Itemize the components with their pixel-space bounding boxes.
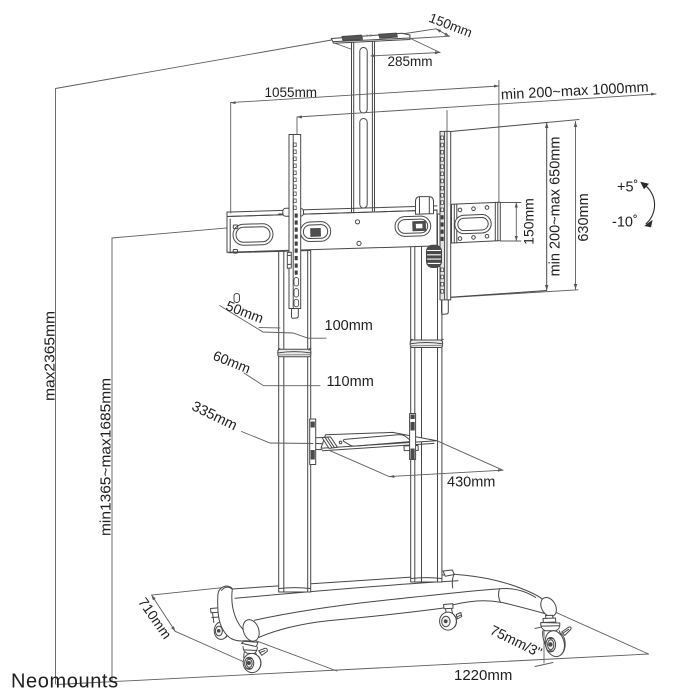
svg-text:100mm: 100mm	[325, 318, 373, 334]
svg-text:min1365~max1685mm: min1365~max1685mm	[98, 378, 115, 536]
svg-text:150mm: 150mm	[521, 198, 537, 245]
svg-text:+5˚: +5˚	[617, 180, 638, 196]
svg-text:Neomounts: Neomounts	[11, 671, 119, 693]
svg-text:285mm: 285mm	[387, 54, 432, 69]
svg-text:-10˚: -10˚	[612, 215, 638, 231]
svg-text:max2365mm: max2365mm	[42, 311, 59, 401]
svg-text:110mm: 110mm	[327, 374, 374, 390]
svg-text:430mm: 430mm	[447, 475, 495, 491]
svg-text:min 200~max 650mm: min 200~max 650mm	[548, 137, 564, 277]
svg-text:630mm: 630mm	[576, 193, 592, 241]
svg-text:1220mm: 1220mm	[454, 667, 512, 684]
svg-text:1055mm: 1055mm	[265, 85, 318, 100]
